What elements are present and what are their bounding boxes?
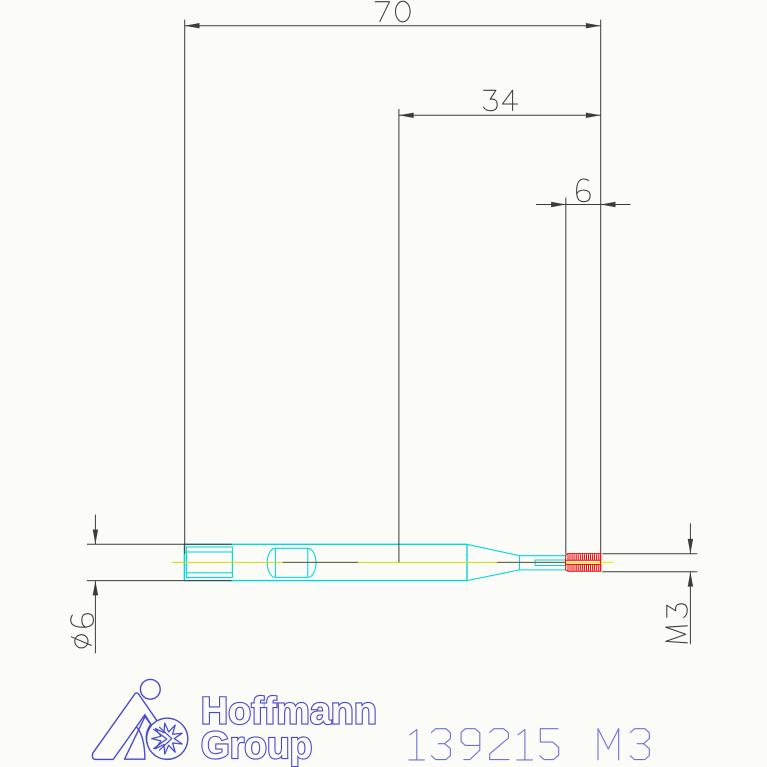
svg-text:Group: Group xyxy=(201,724,313,766)
